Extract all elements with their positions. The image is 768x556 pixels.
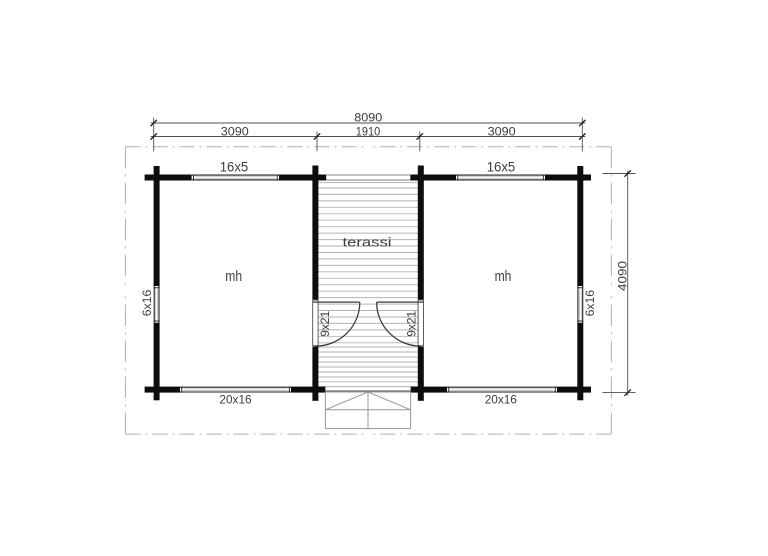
svg-text:20x16: 20x16 [219,392,252,406]
svg-text:1910: 1910 [356,125,381,139]
svg-text:8090: 8090 [354,110,382,124]
svg-text:mh: mh [495,269,512,285]
svg-text:16x5: 16x5 [220,159,249,174]
svg-text:4090: 4090 [616,261,630,291]
svg-text:9x21: 9x21 [318,310,332,336]
svg-text:3090: 3090 [221,125,249,139]
svg-text:9x21: 9x21 [405,310,419,336]
svg-text:20x16: 20x16 [485,392,518,406]
svg-text:6x16: 6x16 [583,290,597,317]
svg-text:3090: 3090 [488,125,516,139]
svg-text:6x16: 6x16 [140,289,154,316]
svg-text:16x5: 16x5 [487,159,516,174]
svg-text:terassi: terassi [343,234,392,249]
svg-text:mh: mh [225,269,242,285]
